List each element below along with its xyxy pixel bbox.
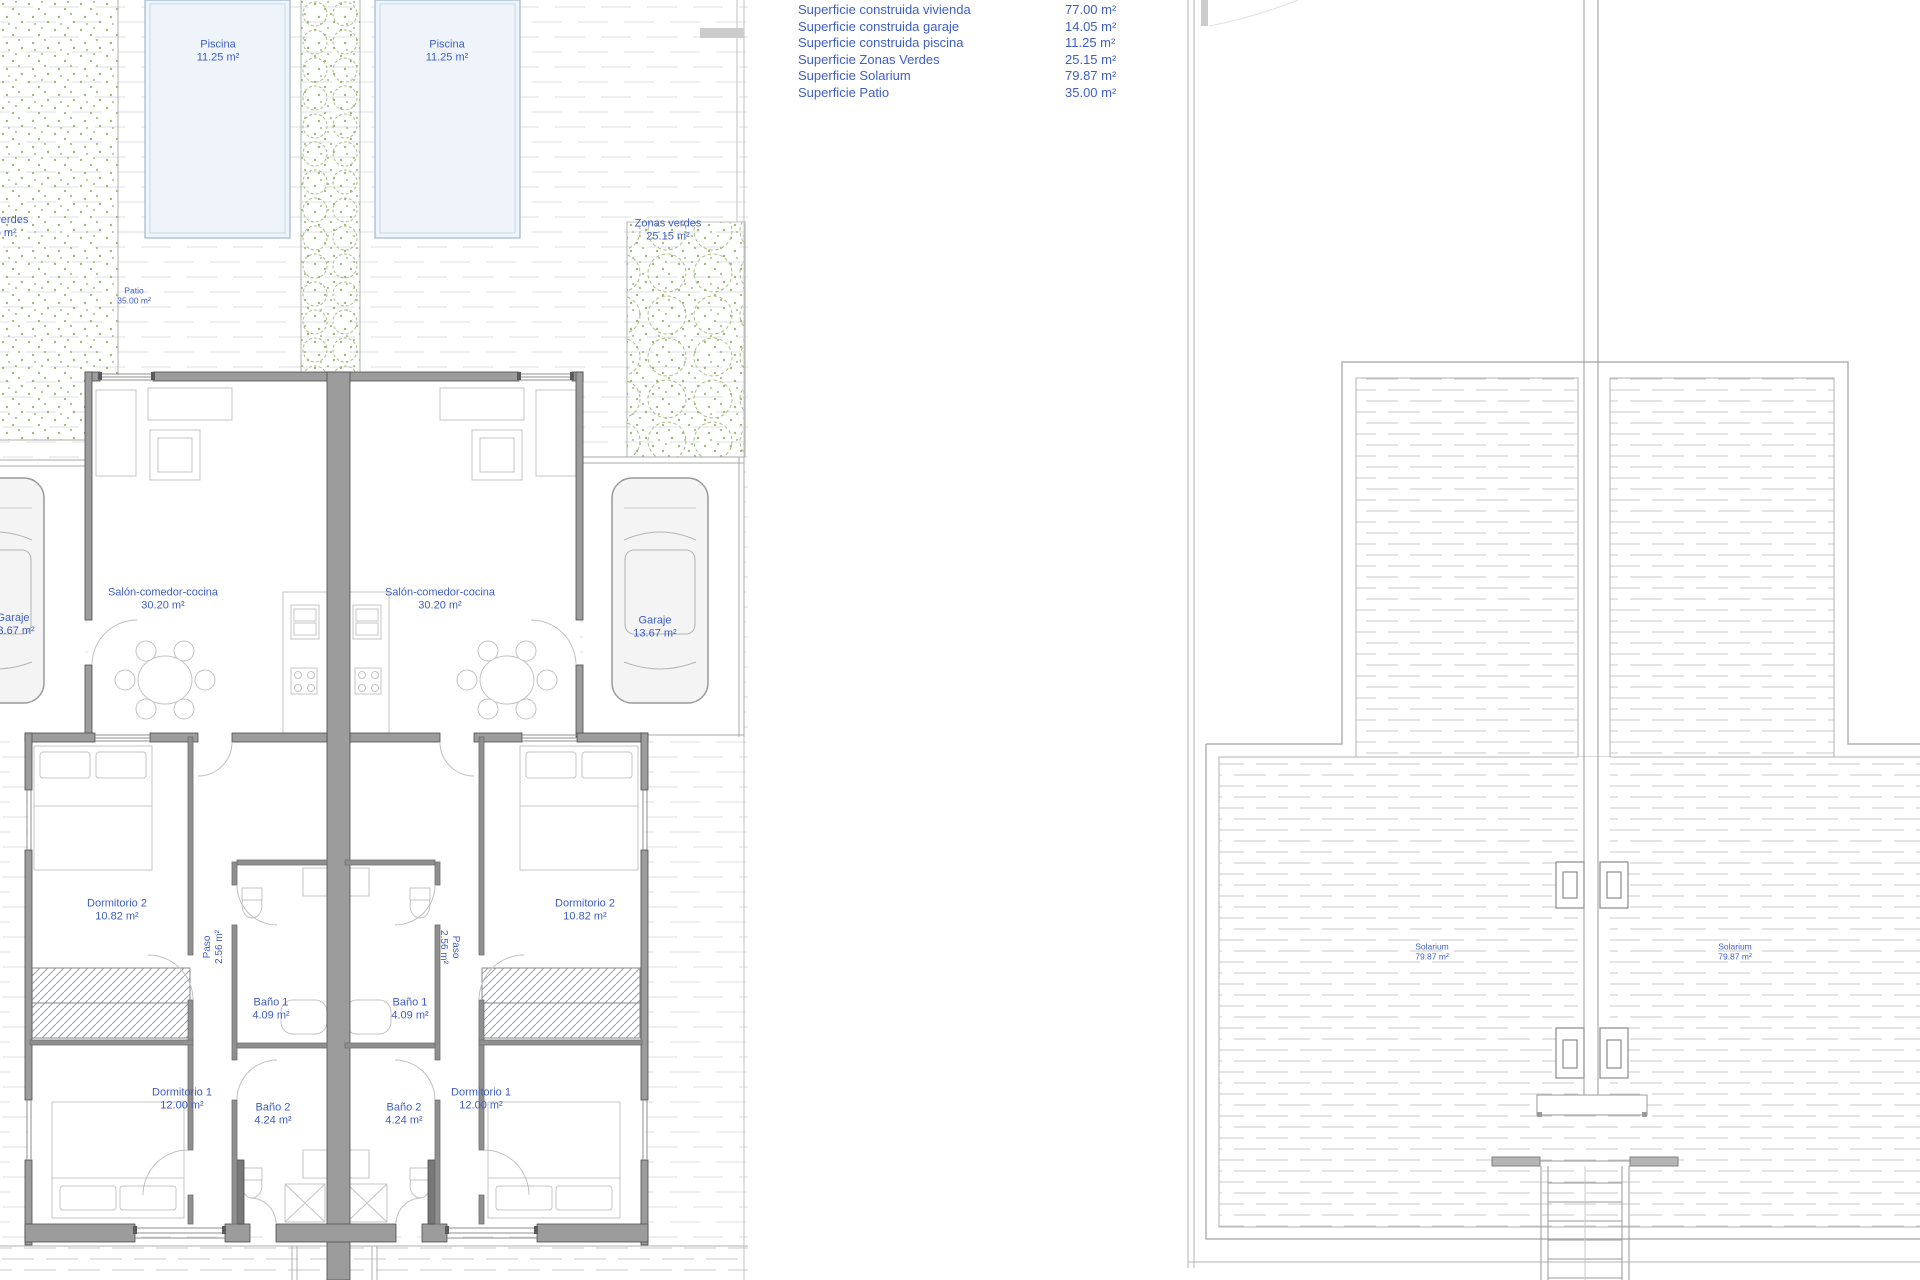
label-bano1-right: Baño 14.09 m²: [391, 997, 428, 1024]
legend-row: Superficie construida vivienda77.00 m²: [798, 2, 1145, 19]
legend-row: Superficie Solarium79.87 m²: [798, 68, 1145, 85]
wardrobe-right: [482, 968, 640, 1038]
label-garaje-left: Garaje13.67 m²: [0, 612, 68, 639]
legend-row: Superficie construida garaje14.05 m²: [798, 19, 1145, 36]
label-dormitorio1-right: Dormitorio 112.00 m²: [451, 1087, 511, 1114]
right-solarium-plan: [1188, 0, 1920, 1280]
legend-row: Superficie construida piscina11.25 m²: [798, 35, 1145, 52]
label-paso-left: Paso2.56 m²: [202, 930, 226, 964]
legend-value: 77.00 m²: [1065, 2, 1145, 17]
label-dormitorio1-left: Dormitorio 112.00 m²: [152, 1087, 212, 1114]
legend-value: 35.00 m²: [1065, 85, 1145, 100]
bed-dorm1-right: [488, 1102, 620, 1218]
legend-value: 14.05 m²: [1065, 19, 1145, 34]
legend-row: Superficie Zonas Verdes25.15 m²: [798, 52, 1145, 69]
bed-dorm1-left: [52, 1102, 184, 1218]
label-patio: Patio35.00 m²: [117, 286, 151, 307]
car-left: [0, 478, 44, 703]
car-right: [612, 478, 708, 703]
kitchen-right: [345, 592, 389, 735]
legend-label: Superficie Solarium: [798, 68, 1065, 83]
legend-label: Superficie Zonas Verdes: [798, 52, 1065, 67]
label-piscina-right: Piscina11.25 m²: [426, 39, 469, 66]
label-paso-right: Paso2.56 m²: [437, 930, 461, 964]
kitchen-left: [283, 592, 327, 735]
label-zonas-verdes-left: Zonas verdes25.15 m²: [0, 214, 60, 241]
legend-label: Superficie construida piscina: [798, 35, 1065, 50]
legend-row: Superficie Patio35.00 m²: [798, 85, 1145, 102]
label-bano2-right: Baño 24.24 m²: [385, 1102, 422, 1129]
legend-value: 79.87 m²: [1065, 68, 1145, 83]
pedestal: [1537, 1095, 1647, 1117]
label-bano1-left: Baño 14.09 m²: [252, 997, 289, 1024]
label-dormitorio2-right: Dormitorio 210.82 m²: [555, 898, 615, 925]
legend-label: Superficie construida garaje: [798, 19, 1065, 34]
legend-label: Superficie Patio: [798, 85, 1065, 100]
label-bano2-left: Baño 24.24 m²: [254, 1102, 291, 1129]
legend-value: 25.15 m²: [1065, 52, 1145, 67]
bed-dorm2-left: [34, 746, 152, 870]
label-salon-right: Salón-comedor-cocina30.20 m²: [385, 587, 495, 614]
plan-drawing: [0, 0, 1920, 1280]
label-zonas-verdes-right: Zonas verdes25.15 m²: [635, 218, 702, 245]
floorplan-page: { "legend": { "rows": [ {"label": "Super…: [0, 0, 1920, 1280]
label-solarium-right: Solarium79.87 m²: [1718, 942, 1752, 963]
bed-dorm2-right: [520, 746, 638, 870]
gate-post: [1201, 0, 1208, 26]
party-wall-line: [1584, 0, 1598, 378]
label-salon-left: Salón-comedor-cocina30.20 m²: [108, 587, 218, 614]
label-garaje-right: Garaje13.67 m²: [633, 615, 676, 642]
porch-paving: [0, 1246, 748, 1280]
wardrobe-left: [32, 968, 190, 1038]
label-dormitorio2-left: Dormitorio 210.82 m²: [87, 898, 147, 925]
legend-value: 11.25 m²: [1065, 35, 1145, 50]
surface-legend: Superficie construida vivienda77.00 m² S…: [798, 2, 1145, 102]
label-piscina-left: Piscina11.25 m²: [197, 39, 240, 66]
gate-swing-arc: [1209, 0, 1298, 26]
legend-label: Superficie construida vivienda: [798, 2, 1065, 17]
label-solarium-left: Solarium79.87 m²: [1415, 942, 1449, 963]
